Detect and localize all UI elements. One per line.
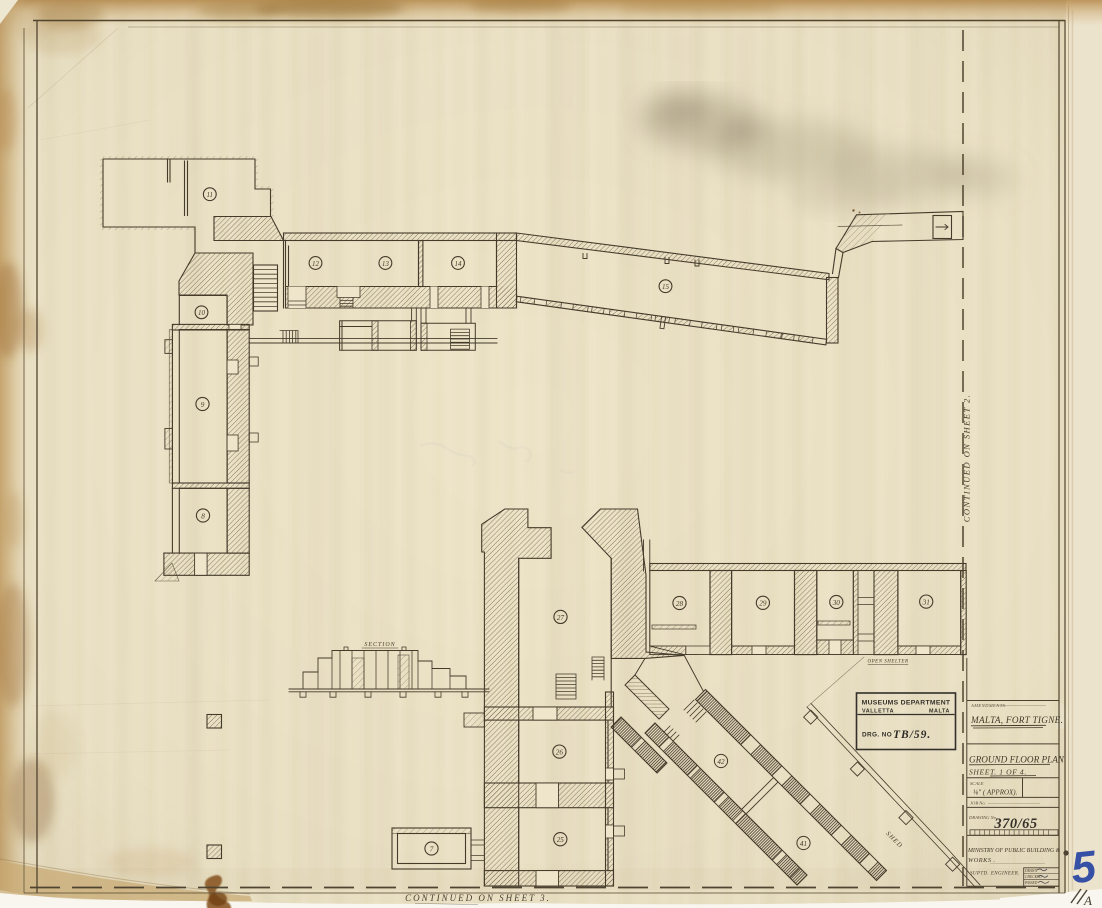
svg-text:A: A bbox=[1083, 893, 1092, 908]
svg-text:CONTINUED ON SHEET 2.: CONTINUED ON SHEET 2. bbox=[962, 394, 972, 523]
svg-text:12: 12 bbox=[312, 260, 320, 268]
svg-text:SCALE: SCALE bbox=[970, 781, 984, 786]
svg-text:⅛″ ( APPROX).: ⅛″ ( APPROX). bbox=[973, 789, 1018, 797]
svg-text:28: 28 bbox=[676, 600, 684, 608]
svg-text:DRAWING No.: DRAWING No. bbox=[968, 815, 997, 820]
svg-text:GROUND FLOOR PLAN: GROUND FLOOR PLAN bbox=[969, 755, 1065, 765]
svg-text:WORKS .: WORKS . bbox=[968, 857, 996, 864]
svg-text:TB/59.: TB/59. bbox=[893, 729, 931, 741]
svg-text:26: 26 bbox=[556, 749, 564, 757]
svg-text:42: 42 bbox=[717, 758, 725, 766]
svg-text:AMENDMENTS.: AMENDMENTS. bbox=[970, 703, 1007, 708]
svg-text:MALTA, FORT TIGNE.: MALTA, FORT TIGNE. bbox=[970, 715, 1063, 725]
svg-text:OPEN SHELTER: OPEN SHELTER bbox=[867, 660, 908, 665]
svg-text:27: 27 bbox=[557, 614, 565, 622]
svg-text:CONTINUED ON SHEET 3.: CONTINUED ON SHEET 3. bbox=[405, 893, 551, 903]
svg-text:MUSEUMS DEPARTMENT: MUSEUMS DEPARTMENT bbox=[862, 700, 951, 707]
svg-text:MALTA: MALTA bbox=[929, 709, 950, 715]
svg-text:MINISTRY OF PUBLIC BUILDING &: MINISTRY OF PUBLIC BUILDING & bbox=[967, 848, 1061, 854]
svg-text:13: 13 bbox=[382, 260, 390, 268]
svg-text:15: 15 bbox=[662, 283, 670, 291]
svg-text:DRAWN: DRAWN bbox=[1024, 869, 1038, 873]
svg-text:PASSED: PASSED bbox=[1024, 881, 1038, 885]
svg-text:SUPTD. ENGINEER.: SUPTD. ENGINEER. bbox=[970, 872, 1020, 877]
svg-text:10: 10 bbox=[198, 309, 206, 317]
svg-text:JOB No.: JOB No. bbox=[970, 801, 986, 806]
svg-text:8: 8 bbox=[201, 512, 205, 520]
svg-text:DRG. NO: DRG. NO bbox=[862, 732, 892, 739]
svg-text:30: 30 bbox=[832, 599, 841, 607]
svg-text:SECTION: SECTION bbox=[364, 642, 395, 648]
svg-text:SHEET. 1 OF 4.: SHEET. 1 OF 4. bbox=[969, 768, 1027, 777]
svg-text:29: 29 bbox=[759, 600, 767, 608]
svg-text:9: 9 bbox=[201, 401, 205, 409]
svg-text:25: 25 bbox=[557, 836, 565, 844]
svg-text:11: 11 bbox=[207, 191, 213, 199]
svg-text:14: 14 bbox=[455, 260, 463, 268]
svg-text:41: 41 bbox=[800, 840, 807, 848]
svg-text:VALLETTA: VALLETTA bbox=[862, 709, 894, 715]
svg-text:31: 31 bbox=[922, 599, 930, 607]
svg-text:7: 7 bbox=[430, 845, 434, 853]
